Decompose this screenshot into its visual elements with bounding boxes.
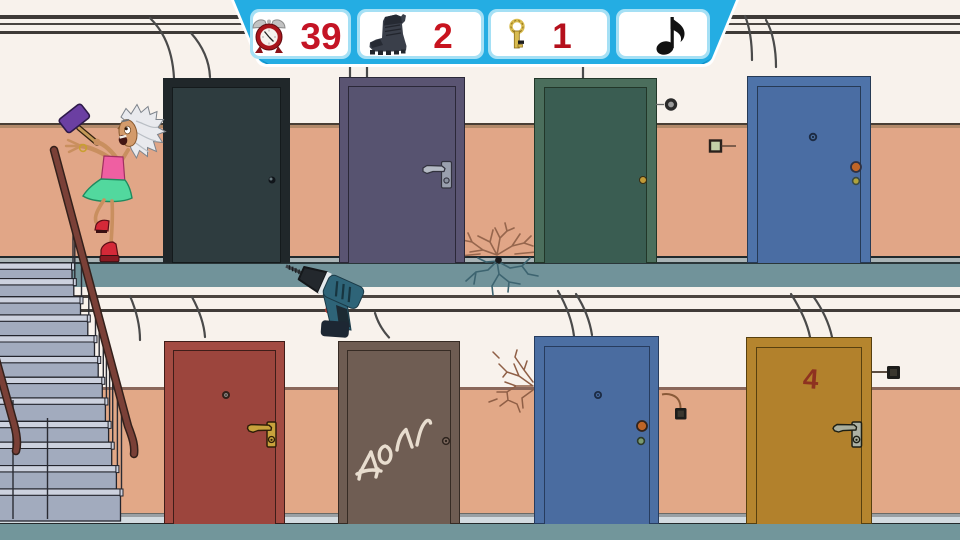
svg-text:39: 39	[300, 16, 341, 57]
svg-text:1: 1	[552, 17, 571, 56]
svg-text:2: 2	[433, 17, 452, 56]
